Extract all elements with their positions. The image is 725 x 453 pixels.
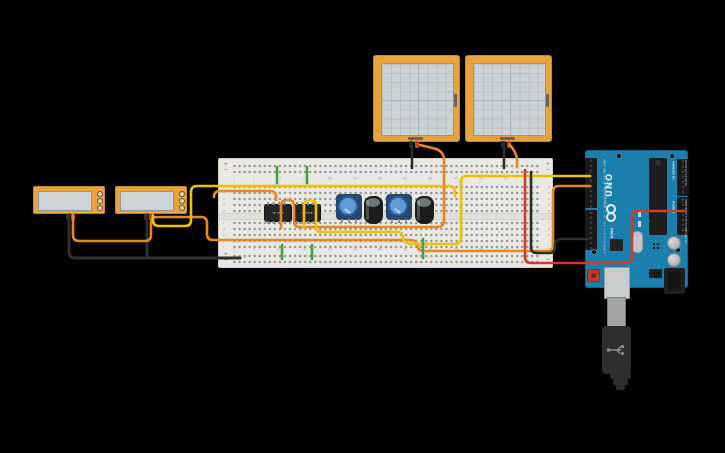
rail-polarity-mark: − xyxy=(224,168,228,173)
power-pin-labels: IOREF RESET 3.3V 5V GND GND Vin xyxy=(684,199,687,235)
scope-grid-hline xyxy=(382,100,453,101)
column-number: 40 xyxy=(428,248,432,252)
scope-grid-hline xyxy=(474,100,545,101)
rail-polarity-mark: − xyxy=(224,258,228,263)
column-number: 10 xyxy=(277,177,281,181)
column-number: 30 xyxy=(378,177,382,181)
digital-pin-labels-upper: AREF GND 13 12 ~11 ~10 ~9 8 xyxy=(603,159,607,207)
digital-header-upper[interactable] xyxy=(585,158,597,208)
column-number: 55 xyxy=(504,177,508,181)
column-number: 20 xyxy=(328,177,332,181)
rail-polarity-mark: − xyxy=(546,168,550,173)
smd-chip xyxy=(610,239,623,251)
power-jack xyxy=(664,268,685,294)
smd-led xyxy=(638,221,641,227)
ic-pins-bottom xyxy=(296,221,318,224)
multimeter-screen xyxy=(120,191,174,211)
arduino-uno-board[interactable]: UNO ARDUINO DIGITAL (PWM~) AREF GND 13 1… xyxy=(585,150,688,288)
power-rail-bottom[interactable] xyxy=(232,253,541,265)
column-number: 35 xyxy=(403,177,407,181)
scope-side-label xyxy=(454,94,457,107)
ic-pins-top xyxy=(296,202,318,205)
scope-bottom-label xyxy=(500,137,515,140)
column-number: 15 xyxy=(302,177,306,181)
power-header-label: POWER xyxy=(672,201,676,231)
multimeter2-negative-pin[interactable] xyxy=(144,214,148,220)
scope-screen xyxy=(381,63,454,136)
mounting-hole xyxy=(591,249,597,255)
column-number: 50 xyxy=(479,177,483,181)
column-number: 10 xyxy=(277,248,281,252)
capacitor-1[interactable] xyxy=(364,196,383,224)
column-number: 60 xyxy=(529,248,533,252)
smd-chip xyxy=(649,269,662,278)
row-letters-right-bottom: f g h i j xyxy=(548,220,550,250)
circuit-canvas: a b c d e f g h i j a b c d e f g h i j … xyxy=(0,0,725,453)
column-number: 60 xyxy=(529,177,533,181)
mode-button-2[interactable] xyxy=(97,198,103,204)
column-number: 45 xyxy=(454,248,458,252)
digital-pin-labels-lower: 7 ~6 ~5 4 ~3 2 TX→1 RX←0 xyxy=(603,211,607,251)
usb-plug[interactable] xyxy=(607,297,626,327)
reset-button[interactable] xyxy=(587,269,600,282)
icsp-header xyxy=(652,242,661,249)
ic-chip-1[interactable]: op amp xyxy=(265,205,291,221)
column-number: 35 xyxy=(403,248,407,252)
row-letters-left-top: a b c d e xyxy=(223,184,225,214)
strain-relief xyxy=(616,385,625,390)
rail-polarity-mark: + xyxy=(224,162,228,167)
column-number: 1 xyxy=(233,248,235,252)
ic-label: op amp xyxy=(301,212,312,215)
mounting-hole xyxy=(669,153,675,159)
column-number: 20 xyxy=(328,248,332,252)
pot-knob[interactable] xyxy=(388,196,408,216)
analog-header[interactable] xyxy=(677,159,689,196)
mode-button-1[interactable] xyxy=(97,191,103,197)
usb-cable-head[interactable] xyxy=(602,326,631,374)
rail-polarity-mark: + xyxy=(546,162,550,167)
ic-chip-2[interactable]: op amp xyxy=(294,205,320,221)
mode-button-1[interactable] xyxy=(179,191,185,197)
mode-button-2[interactable] xyxy=(179,198,185,204)
column-number: 25 xyxy=(353,177,357,181)
column-numbers-bottom: 151015202530354045505560 xyxy=(219,248,554,254)
smd-led xyxy=(638,211,641,217)
scope1-positive-pin[interactable] xyxy=(415,141,419,148)
multimeter-screen xyxy=(38,191,92,211)
oscilloscope-2[interactable] xyxy=(465,55,552,142)
ic-pins-top xyxy=(267,202,289,205)
scope2-negative-pin[interactable] xyxy=(501,141,505,148)
usb-logo-icon xyxy=(606,343,627,357)
rail-polarity-mark: − xyxy=(546,258,550,263)
scope-screen xyxy=(473,63,546,136)
mounting-hole xyxy=(616,153,622,159)
scope-side-label xyxy=(546,94,549,107)
multimeter1-positive-pin[interactable] xyxy=(71,214,75,220)
potentiometer-1[interactable] xyxy=(336,194,362,220)
mode-button-3[interactable] xyxy=(97,205,103,211)
column-number: 30 xyxy=(378,248,382,252)
oscilloscope-1[interactable] xyxy=(373,55,460,142)
row-letters-left-bottom: f g h i j xyxy=(223,220,225,250)
crystal-oscillator xyxy=(632,231,643,253)
pot-knob[interactable] xyxy=(338,196,358,216)
mcu-chip xyxy=(649,158,667,235)
usb-connector xyxy=(604,267,630,299)
multimeter1-negative-pin[interactable] xyxy=(66,214,70,220)
column-number: 50 xyxy=(479,248,483,252)
column-number: 15 xyxy=(302,248,306,252)
capacitor-2[interactable] xyxy=(415,196,434,224)
column-number: 25 xyxy=(353,248,357,252)
analog-header-label: ANALOG IN xyxy=(672,161,676,194)
power-header[interactable] xyxy=(677,197,689,235)
column-number: 55 xyxy=(504,248,508,252)
wire-black-multimeter1-gnd[interactable] xyxy=(69,215,240,258)
power-rail-top[interactable] xyxy=(232,163,541,175)
electrolytic-capacitor xyxy=(667,236,681,250)
scope1-negative-pin[interactable] xyxy=(409,141,413,148)
multimeter-2[interactable] xyxy=(115,186,187,214)
terminal-strip-bottom[interactable] xyxy=(232,220,541,250)
multimeter-1[interactable] xyxy=(33,186,105,214)
ic-pins-bottom xyxy=(267,221,289,224)
column-number: 5 xyxy=(253,248,255,252)
column-number: 5 xyxy=(253,177,255,181)
scope2-positive-pin[interactable] xyxy=(507,141,511,148)
column-number: 45 xyxy=(454,177,458,181)
column-number: 40 xyxy=(428,177,432,181)
electrolytic-capacitor xyxy=(667,253,681,267)
scope-bottom-label xyxy=(408,137,423,140)
column-number: 1 xyxy=(233,177,235,181)
mode-button-3[interactable] xyxy=(179,205,185,211)
multimeter2-positive-pin[interactable] xyxy=(149,214,153,220)
ic-label: op amp xyxy=(272,212,283,215)
analog-pin-labels: A0 A1 A2 A3 A4 A5 xyxy=(684,160,687,195)
row-letters-right-top: a b c d e xyxy=(548,184,550,214)
potentiometer-2[interactable] xyxy=(386,194,412,220)
column-numbers-top: 151015202530354045505560 xyxy=(219,177,554,183)
digital-header-lower[interactable] xyxy=(585,210,597,250)
